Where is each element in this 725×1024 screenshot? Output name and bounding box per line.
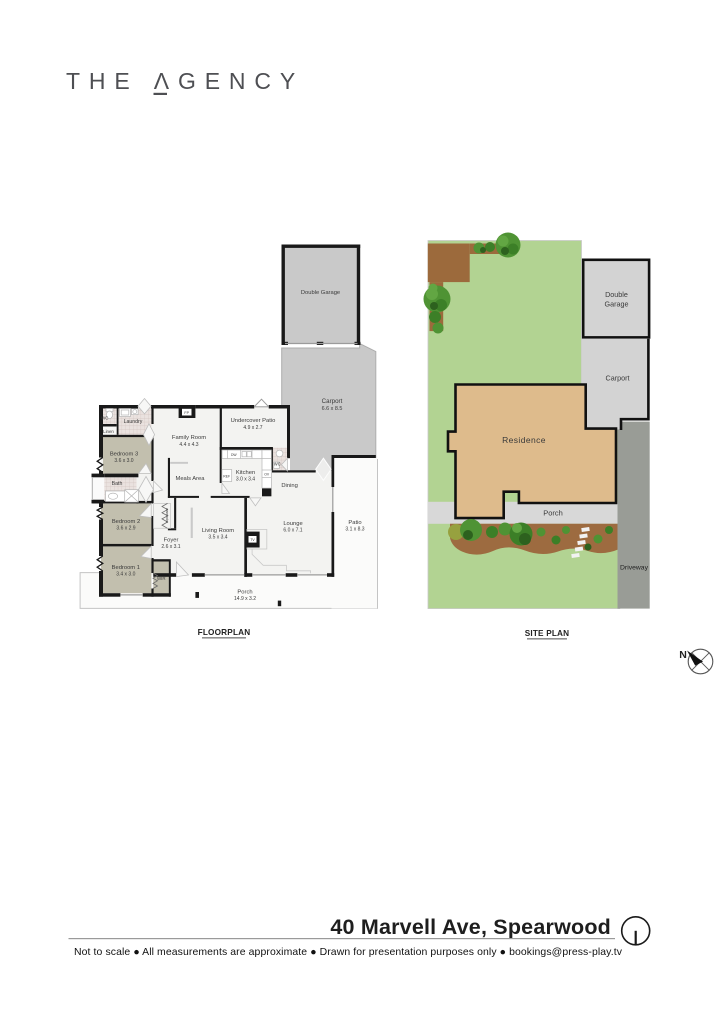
svg-text:wardrobe: wardrobe: [165, 508, 169, 523]
svg-text:Kitchen: Kitchen: [236, 470, 255, 476]
svg-text:3.4 x 3.0: 3.4 x 3.0: [116, 572, 135, 578]
svg-text:Porch: Porch: [543, 509, 563, 518]
svg-text:40 Marvell Ave, Spearwood: 40 Marvell Ave, Spearwood: [330, 915, 611, 939]
svg-text:TV: TV: [250, 538, 255, 542]
svg-text:Residence: Residence: [502, 435, 546, 445]
svg-text:REF: REF: [223, 475, 230, 479]
svg-text:6.0 x 7.1: 6.0 x 7.1: [283, 528, 302, 534]
svg-text:WIR: WIR: [157, 576, 166, 581]
svg-text:Foyer: Foyer: [164, 538, 179, 544]
svg-text:4.9 x 2.7: 4.9 x 2.7: [243, 425, 262, 431]
svg-text:Bedroom 2: Bedroom 2: [112, 519, 140, 525]
svg-text:Carport: Carport: [322, 398, 343, 405]
svg-text:3.6 x 2.9: 3.6 x 2.9: [116, 526, 135, 532]
svg-text:14.9 x 3.2: 14.9 x 3.2: [234, 596, 256, 602]
svg-text:Not to scale ● All measurement: Not to scale ● All measurements are appr…: [74, 947, 623, 958]
svg-text:3.6 x 3.0: 3.6 x 3.0: [114, 458, 133, 464]
svg-text:Bedroom 3: Bedroom 3: [110, 452, 138, 458]
svg-text:Undercover Patio: Undercover Patio: [231, 418, 276, 424]
svg-text:N: N: [679, 649, 687, 661]
svg-text:Lounge: Lounge: [283, 521, 302, 527]
svg-text:Bath: Bath: [112, 481, 123, 487]
svg-text:WC: WC: [274, 462, 281, 467]
svg-text:3.0 x 3.4: 3.0 x 3.4: [236, 477, 255, 483]
svg-text:Bedroom 1: Bedroom 1: [112, 565, 140, 571]
svg-text:Laundry: Laundry: [124, 419, 143, 425]
svg-text:FP: FP: [184, 411, 189, 415]
svg-text:Driveway: Driveway: [620, 565, 649, 572]
svg-text:2.6 x 3.1: 2.6 x 3.1: [161, 544, 180, 550]
svg-text:Family Room: Family Room: [172, 435, 206, 441]
svg-text:3.1 x 8.3: 3.1 x 8.3: [345, 527, 364, 533]
svg-text:Dining: Dining: [281, 483, 297, 489]
svg-text:Porch: Porch: [237, 590, 252, 596]
svg-text:Garage: Garage: [605, 300, 629, 309]
svg-text:Living Room: Living Room: [202, 528, 234, 534]
svg-text:Double: Double: [605, 290, 628, 299]
svg-text:WC: WC: [101, 416, 108, 421]
svg-text:4.4 x 4.3: 4.4 x 4.3: [179, 442, 198, 448]
svg-text:THE ΛGENCY: THE ΛGENCY: [66, 68, 304, 94]
svg-text:OV: OV: [264, 473, 270, 477]
svg-text:Carport: Carport: [606, 374, 630, 383]
svg-text:FLOORPLAN: FLOORPLAN: [198, 628, 251, 637]
svg-text:Double Garage: Double Garage: [301, 290, 340, 296]
svg-text:Meals Area: Meals Area: [176, 476, 206, 482]
svg-text:3.5 x 3.4: 3.5 x 3.4: [208, 535, 227, 541]
svg-text:SITE PLAN: SITE PLAN: [525, 629, 570, 638]
svg-text:Patio: Patio: [348, 520, 361, 526]
svg-text:6.6 x 8.5: 6.6 x 8.5: [322, 406, 343, 412]
svg-text:DW: DW: [231, 453, 237, 457]
svg-text:Linen: Linen: [103, 429, 114, 434]
